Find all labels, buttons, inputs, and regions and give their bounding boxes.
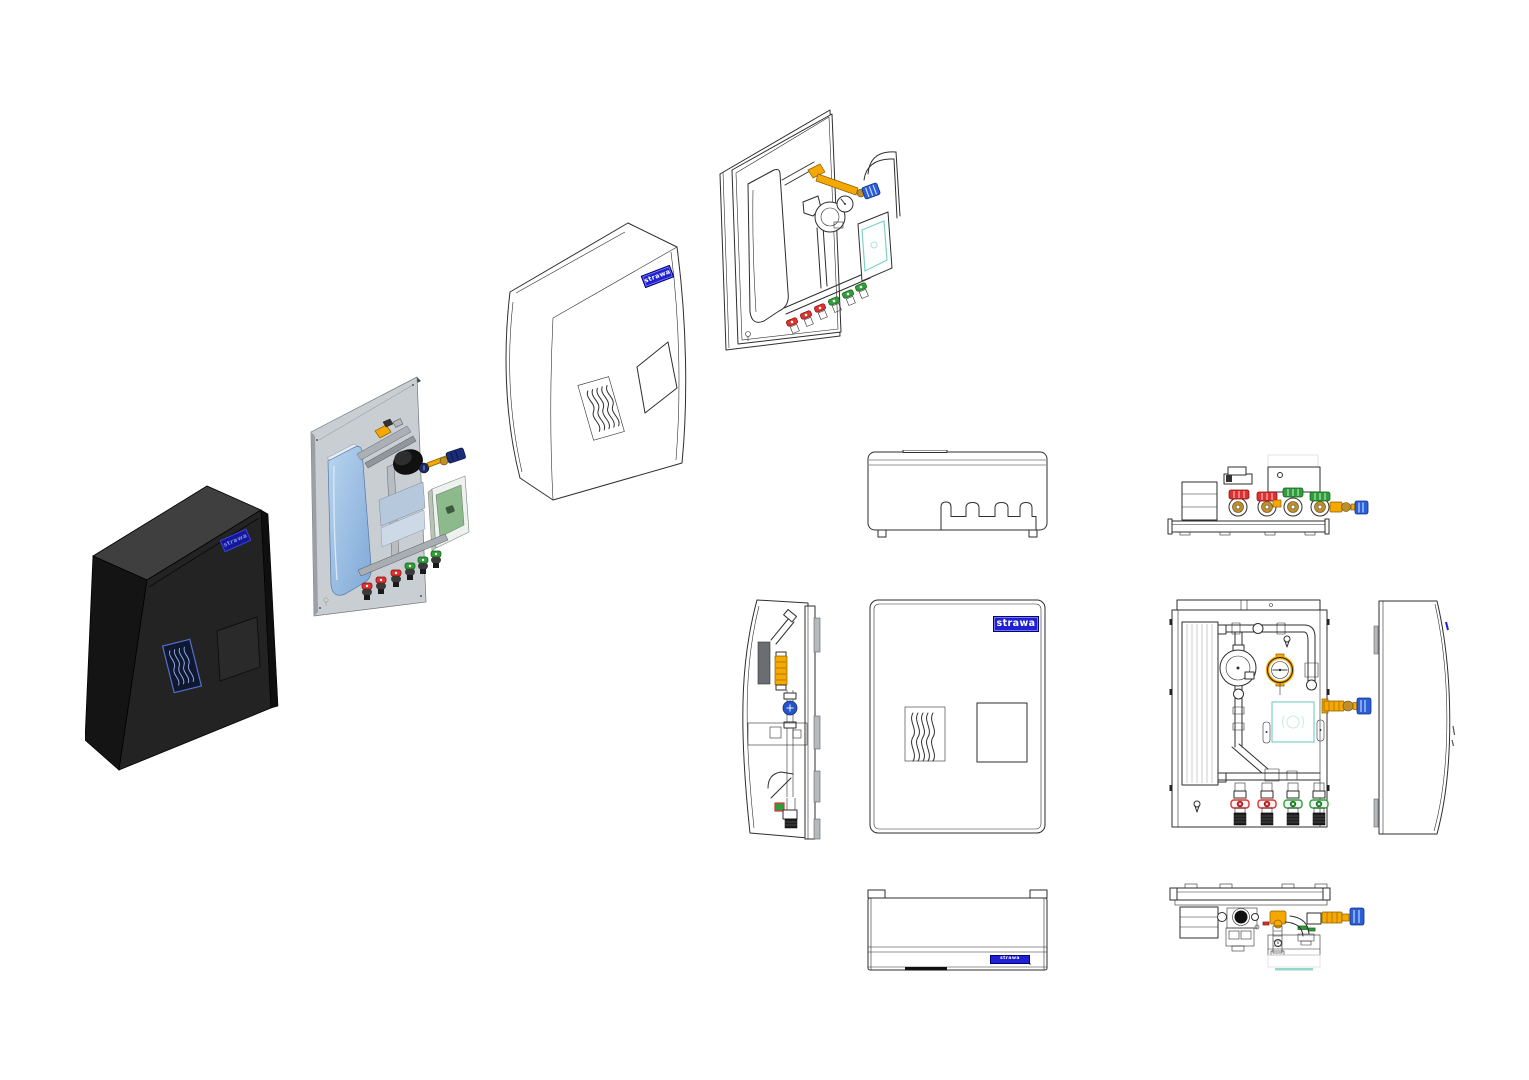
top-tab (903, 450, 947, 453)
cover-body (506, 223, 686, 500)
blue-cap (1355, 501, 1368, 514)
module-top-view (1160, 450, 1392, 545)
yellow-fitting-top (1273, 500, 1281, 507)
strawa-logo-front-view: strawa (993, 616, 1039, 632)
cover-profile (743, 600, 808, 838)
pump-bottom (1218, 908, 1259, 951)
fill-valve-front (1322, 698, 1371, 714)
hydraulic-module-iso (295, 362, 495, 637)
blue-cap (1350, 908, 1364, 925)
pump-side (758, 642, 770, 684)
blue-cap (1357, 698, 1371, 714)
strawa-logo-text: strawa (1000, 957, 1020, 962)
module-bottom-view (1165, 876, 1398, 988)
corner-tab-right (1030, 890, 1047, 898)
module-side-view (735, 592, 835, 844)
foot-right (1029, 530, 1037, 537)
backplate-edge (805, 606, 820, 839)
ball-valve-lever (427, 448, 466, 467)
assembled-module-iso (718, 96, 910, 388)
heat-exchanger-bottom (1180, 907, 1218, 938)
strawa-logo-text: strawa (997, 619, 1036, 629)
baseplate (1168, 519, 1329, 535)
fill-valve-top (1330, 501, 1368, 514)
fill-valve-bottom (1307, 908, 1364, 925)
enclosure-back-iso (85, 478, 290, 793)
enclosure-body (85, 486, 278, 770)
foot-left (878, 530, 886, 537)
front-cover-iso (505, 222, 705, 514)
wall-rail (1177, 600, 1320, 610)
module-front-view (1167, 597, 1397, 847)
corner-tab-left (868, 890, 885, 898)
technical-drawing-canvas: strawa strawa strawa strawa (0, 0, 1529, 1080)
enclosure-top-view (865, 450, 1050, 543)
enclosure-bottom-view (863, 884, 1055, 986)
strawa-logo-bottom-view: strawa (990, 955, 1030, 964)
yellow-valve-side (775, 652, 787, 690)
baseplate-bottom (1170, 884, 1330, 905)
blue-cap (861, 183, 880, 200)
teal-strip (1275, 968, 1313, 971)
controller-ghost (1268, 455, 1318, 467)
vent-slot (905, 967, 947, 971)
controller-outline (858, 212, 892, 281)
hinge-tab-bottom (1374, 799, 1378, 827)
hinge-tab-top (1374, 626, 1378, 654)
heat-exchanger-top (1182, 482, 1217, 520)
pump-top (1224, 467, 1252, 484)
cover-side-view (1373, 588, 1459, 842)
logo-edge (1446, 622, 1448, 630)
